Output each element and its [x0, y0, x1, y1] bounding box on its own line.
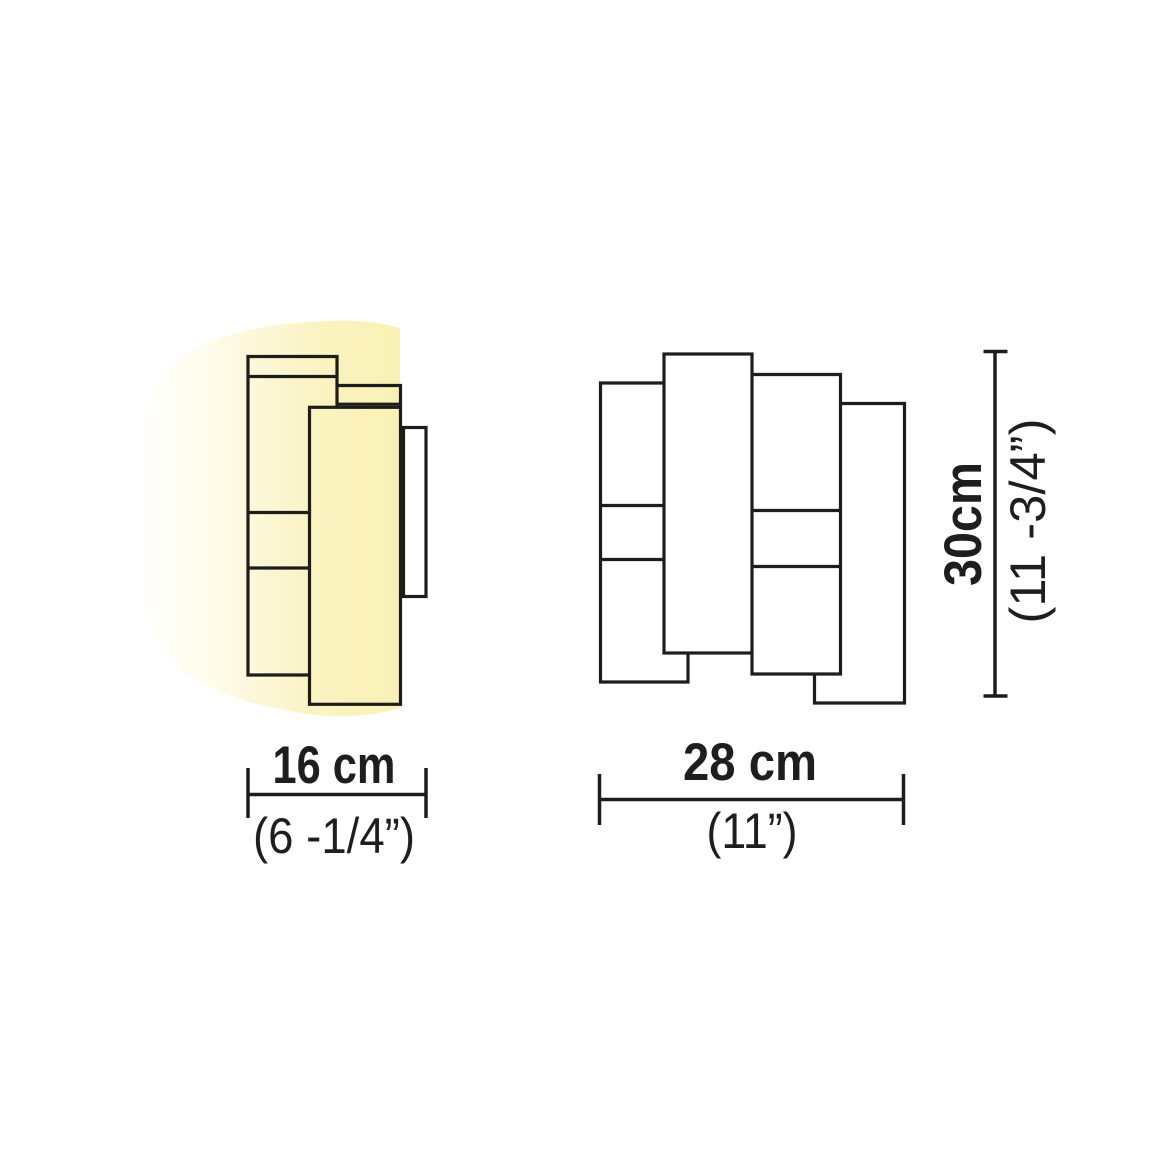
- svg-text:30cm: 30cm: [934, 462, 993, 586]
- svg-text:(6 -1/4”): (6 -1/4”): [253, 808, 415, 864]
- svg-text:28 cm: 28 cm: [683, 733, 817, 792]
- svg-text:16 cm: 16 cm: [273, 736, 396, 795]
- svg-text:(11 -3/4”): (11 -3/4”): [1000, 419, 1056, 624]
- svg-text:(11”): (11”): [707, 803, 798, 859]
